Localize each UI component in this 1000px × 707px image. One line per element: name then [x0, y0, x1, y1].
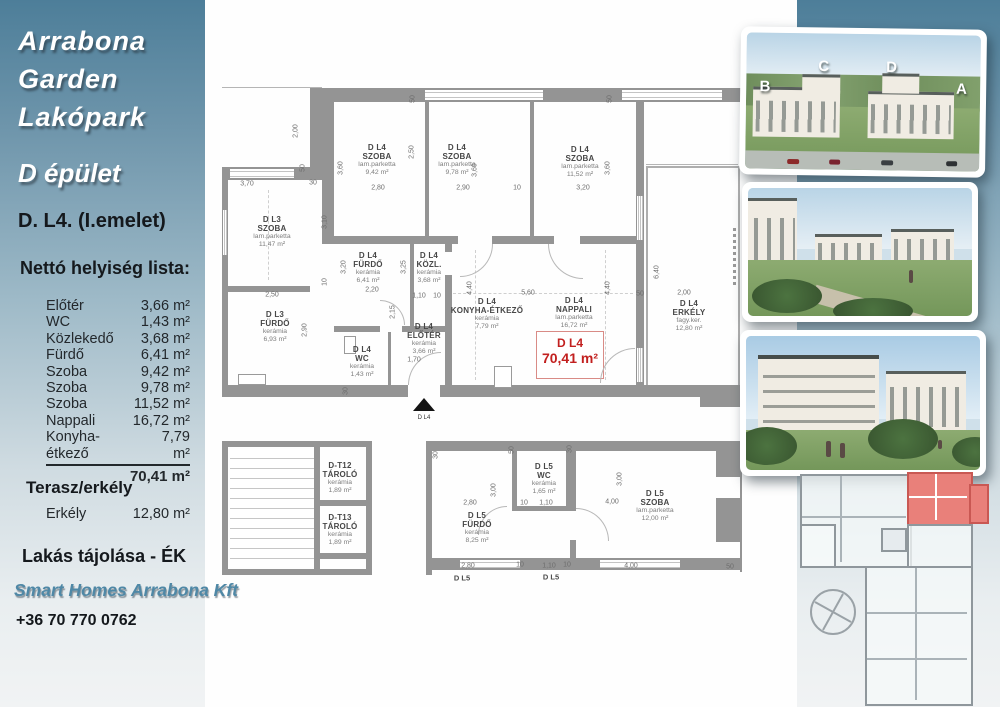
window	[230, 169, 294, 178]
dt12-tarolo-label: D-T12TÁROLÓkerámia1,89 m²	[323, 461, 358, 495]
dt13-tarolo-label: D-T13TÁROLÓkerámia1,89 m²	[323, 513, 358, 547]
dimension-text: 2,50	[409, 145, 416, 159]
dl4-eloter-label: D L4ELŐTÉRkerámia3,66 m²	[407, 322, 441, 356]
dimension-text: 3,10	[322, 215, 329, 229]
dimension-text: 2,80	[371, 185, 385, 192]
room-list-row: Közlekedő3,68 m²	[46, 331, 190, 347]
building-back-right	[882, 74, 920, 94]
building-right	[867, 91, 954, 139]
dimension-text: 10	[322, 278, 329, 286]
dimension-text: 2,15	[390, 305, 397, 319]
room-list-row: Szoba9,42 m²	[46, 364, 190, 380]
dl4-erkely-label: D L4ERKÉLYfagy.ker.12,80 m²	[673, 299, 706, 333]
dimension-text: 10	[516, 562, 524, 569]
phone-number: +36 70 770 0762	[16, 612, 137, 630]
site-key-plan	[795, 468, 997, 706]
keyplan-unit-l4-highlight	[907, 472, 973, 526]
window	[223, 210, 227, 255]
dimension-text: 3,60	[605, 161, 612, 175]
person	[909, 270, 913, 283]
wall	[308, 500, 372, 506]
dl4-wc-label: D L4WCkerámia1,43 m²	[350, 345, 374, 379]
wall	[430, 441, 742, 451]
keyplan-unit-annex	[969, 484, 989, 524]
dimension-text: 4,00	[624, 563, 638, 570]
dimension-text: 2,00	[677, 290, 691, 297]
building-back-left	[802, 74, 840, 94]
wall	[512, 506, 571, 511]
room-list-row: Szoba11,52 m²	[46, 396, 190, 412]
fixture	[238, 374, 266, 385]
unit-area-box: D L4 70,41 m²	[536, 331, 604, 379]
wall	[334, 326, 380, 332]
window	[637, 348, 643, 382]
wall	[716, 498, 742, 542]
keyplan-mid-block	[907, 524, 973, 568]
road	[745, 151, 979, 172]
window	[600, 560, 680, 568]
photo-courtyard-render	[742, 182, 978, 322]
terrace-label: Erkély	[46, 506, 86, 522]
window	[622, 90, 722, 100]
wall	[308, 441, 372, 447]
building-main	[758, 355, 880, 434]
room-list: Előtér3,66 m²WC1,43 m²Közlekedő3,68 m²Fü…	[46, 298, 190, 485]
dl4-szoba-1-label: D L4SZOBAlam.parketta9,42 m²	[358, 143, 395, 177]
wall	[222, 385, 408, 397]
person	[826, 441, 831, 457]
dimension-text: 10	[433, 293, 441, 300]
logo-line: Lakópark	[18, 102, 146, 132]
courtyard-render-image	[748, 188, 972, 316]
room-list-row: Fürdő6,41 m²	[46, 347, 190, 363]
dimension-text: 2,80	[461, 563, 475, 570]
dl4-konyha-label: D L4KONYHA-ÉTKEZŐkerámia7,79 m²	[451, 297, 523, 331]
wall	[425, 102, 429, 236]
logo-line: Arrabona	[18, 26, 146, 56]
wall	[322, 236, 458, 244]
room-list-row: Nappali16,72 m²	[46, 413, 190, 429]
tree	[868, 419, 938, 459]
dl4-szoba-2-label: D L4SZOBAlam.parketta9,78 m²	[438, 143, 475, 177]
car	[829, 159, 840, 164]
dimension-text: 6,40	[654, 265, 661, 279]
dimension-text: 3,25	[401, 260, 408, 274]
photo-street-render	[740, 330, 986, 476]
dimension-text: 3,60	[472, 163, 479, 177]
wall	[534, 236, 554, 244]
dimension-text: 2,50	[265, 292, 279, 299]
dimension-text: 2,80	[463, 500, 477, 507]
wall	[440, 385, 742, 397]
window	[425, 90, 543, 100]
terrace-value: 12,80 m²	[133, 506, 190, 522]
dl3-furdo-label: D L3FÜRDŐkerámia6,93 m²	[260, 310, 289, 344]
wall	[700, 393, 744, 407]
wall	[426, 441, 432, 575]
orientation-text: Lakás tájolása - ÉK	[22, 546, 186, 567]
project-logo: Arrabona Garden Lakópark	[18, 22, 146, 136]
person-with-stroller	[840, 443, 845, 458]
dimension-text: 10	[513, 185, 521, 192]
dl4-nappali-label: D L4NAPPALIlam.parketta16,72 m²	[555, 296, 592, 330]
entrance-arrow-label: D L4	[418, 415, 431, 421]
dimension-text: 50	[410, 95, 417, 103]
dl5-furdo-label: D L5FÜRDŐkerámia8,25 m²	[462, 511, 491, 545]
wall	[445, 244, 452, 252]
dimension-text: 30	[567, 445, 574, 453]
balcony-hatch	[733, 228, 736, 286]
dimension-text: 50	[509, 446, 516, 454]
dimension-text: 50	[726, 564, 734, 571]
street-render-image	[746, 336, 980, 470]
dimension-line	[222, 87, 322, 88]
wall	[570, 451, 576, 511]
dimension-text: 5,60	[521, 290, 535, 297]
wall	[308, 553, 372, 559]
unit-label: D L5	[543, 573, 559, 582]
wall	[222, 569, 372, 575]
dimension-text: 30	[343, 387, 350, 395]
building-letter: A	[956, 81, 967, 98]
dimension-text: 2,90	[302, 323, 309, 337]
terrace-row: Erkély 12,80 m²	[46, 506, 190, 522]
dimension-text: 1,10	[412, 293, 426, 300]
wall	[512, 451, 517, 511]
person-on-bench	[938, 440, 942, 449]
fixture	[494, 366, 512, 388]
dimension-text: 1,10	[539, 500, 553, 507]
wall	[716, 441, 742, 477]
wall	[222, 441, 228, 575]
wall	[580, 236, 636, 244]
keyplan-wing-b	[865, 566, 973, 706]
dimension-text: 2,90	[456, 185, 470, 192]
dimension-line	[646, 164, 738, 165]
building-letter: C	[818, 57, 829, 74]
building-name: D épület	[18, 158, 121, 189]
wall	[492, 236, 534, 244]
dimension-text: 3,60	[338, 161, 345, 175]
dl5-wc-label: D L5WCkerámia1,65 m²	[532, 462, 556, 496]
building-letter: D	[886, 58, 897, 75]
unit-title: D. L4. (I.emelet)	[18, 210, 166, 233]
dimension-text: 2,00	[293, 124, 300, 138]
building-letter: B	[759, 78, 770, 95]
dimension-text: 3,20	[576, 185, 590, 192]
wall	[222, 441, 320, 447]
room-list-row: Szoba9,78 m²	[46, 380, 190, 396]
dimension-text: 1,10	[542, 563, 556, 570]
dimension-text: 50	[300, 164, 307, 172]
wall	[410, 244, 414, 330]
photo-aerial-render: B C D A	[739, 26, 987, 177]
entrance-arrow-icon	[413, 398, 435, 411]
dimension-text: 4,40	[467, 281, 474, 295]
aerial-render-image: B C D A	[745, 32, 981, 171]
dl4-kozl-label: D L4KÖZL.kerámia3,68 m²	[417, 251, 442, 285]
dl4-szoba-3-label: D L4SZOBAlam.parketta11,52 m²	[561, 145, 598, 179]
room-list-row: WC1,43 m²	[46, 314, 190, 330]
dimension-text: 50	[607, 95, 614, 103]
room-list-title: Nettó helyiség lista:	[20, 258, 190, 279]
wall	[222, 167, 228, 397]
dimension-text: 3,00	[491, 483, 498, 497]
dimension-text: 10	[520, 500, 528, 507]
dl4-furdo-label: D L4FÜRDŐkerámia6,41 m²	[353, 251, 382, 285]
dimension-text: 4,40	[605, 281, 612, 295]
car	[946, 161, 957, 166]
dl3-szoba-label: D L3SZOBAlam.parketta11,47 m²	[253, 215, 290, 249]
logo-line: Garden	[18, 64, 119, 94]
wall	[388, 332, 391, 385]
dimension-text: 10	[563, 562, 571, 569]
keyplan-left-arm	[800, 524, 836, 568]
dimension-text: 50	[636, 291, 644, 298]
dimension-text: 3,00	[617, 472, 624, 486]
room-list-row: Konyha-étkező7,79 m²	[46, 429, 190, 462]
wall	[530, 102, 534, 236]
dl5-szoba-label: D L5SZOBAlam.parketta12,00 m²	[636, 489, 673, 523]
compass-icon	[807, 586, 859, 638]
wall	[445, 275, 452, 387]
dimension-text: 3,20	[341, 260, 348, 274]
unit-label: D L5	[454, 574, 470, 583]
keyplan-stair-core	[881, 528, 907, 552]
window	[637, 196, 643, 240]
dimension-text: 4,00	[605, 499, 619, 506]
car	[881, 160, 893, 165]
dimension-text: 3,70	[240, 181, 254, 188]
room-list-row: Előtér3,66 m²	[46, 298, 190, 314]
dimension-text: 1,70	[407, 357, 421, 364]
stairwell	[230, 449, 314, 567]
company-name: Smart Homes Arrabona Kft	[14, 580, 238, 601]
terrace-title: Terasz/erkély	[26, 478, 132, 498]
car	[787, 159, 799, 164]
dimension-text: 2,20	[365, 287, 379, 294]
dimension-text: 30	[433, 451, 440, 459]
brochure-page: Arrabona Garden Lakópark D épület D. L4.…	[0, 0, 1000, 707]
dimension-text: 30	[309, 180, 317, 187]
